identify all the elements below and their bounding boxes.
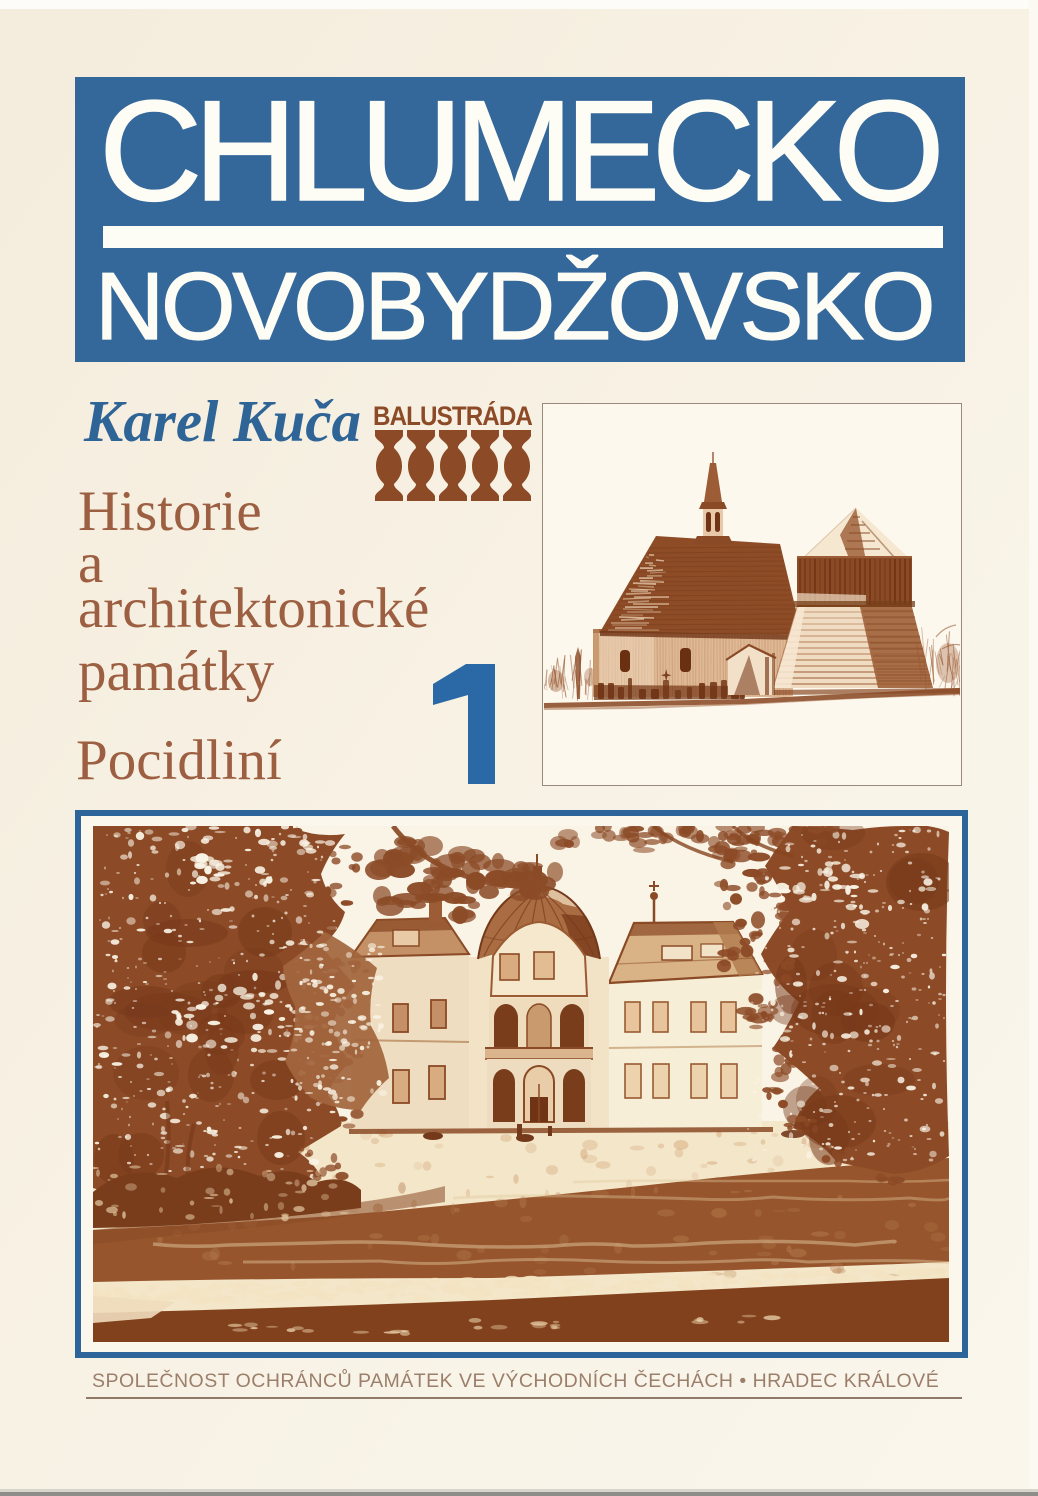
svg-text:BALUSTRÁDA: BALUSTRÁDA [374,401,532,431]
